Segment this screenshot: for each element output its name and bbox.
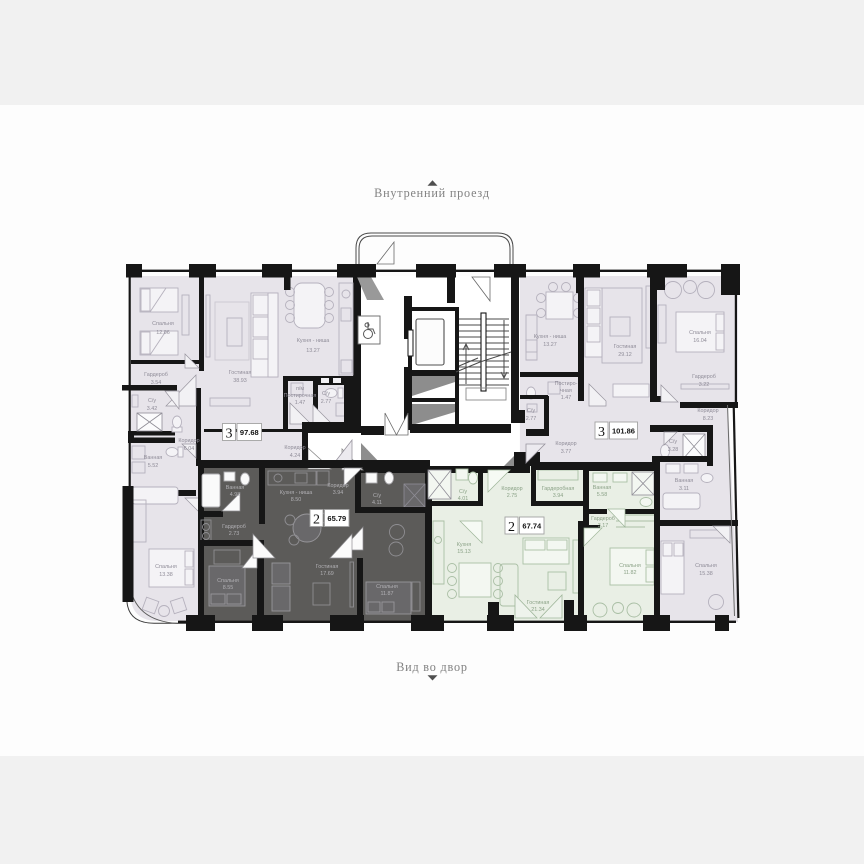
svg-text:3.11: 3.11: [679, 486, 689, 492]
svg-text:11.82: 11.82: [623, 570, 636, 576]
svg-text:3.94: 3.94: [333, 490, 344, 496]
svg-text:1.47: 1.47: [295, 400, 306, 406]
svg-text:4.98: 4.98: [230, 492, 241, 498]
svg-text:С/у: С/у: [669, 439, 677, 445]
svg-text:Вид во двор: Вид во двор: [396, 660, 468, 674]
svg-text:21.34: 21.34: [531, 607, 545, 613]
svg-text:С/у: С/у: [148, 398, 156, 404]
svg-text:3.54: 3.54: [151, 380, 162, 386]
svg-text:Гардероб: Гардероб: [692, 374, 716, 380]
svg-text:Кухня - ниша: Кухня - ниша: [297, 338, 330, 344]
svg-text:Коридор: Коридор: [697, 408, 718, 414]
svg-text:Коридор: Коридор: [178, 438, 199, 444]
svg-text:2.77: 2.77: [321, 399, 332, 405]
svg-text:8.55: 8.55: [223, 585, 234, 591]
svg-text:15.13: 15.13: [457, 549, 471, 555]
svg-text:15.38: 15.38: [699, 571, 713, 577]
svg-text:67.74: 67.74: [522, 522, 542, 531]
svg-text:Ванная: Ванная: [226, 485, 245, 491]
svg-text:5.58: 5.58: [597, 492, 608, 498]
svg-text:Внутренний проезд: Внутренний проезд: [374, 186, 490, 200]
svg-text:Гардеробная: Гардеробная: [542, 486, 575, 492]
svg-text:13.27: 13.27: [543, 342, 557, 348]
svg-text:Ванная: Ванная: [675, 478, 694, 484]
svg-text:4.24: 4.24: [290, 453, 301, 459]
svg-text:2.73: 2.73: [229, 531, 240, 537]
svg-text:8.23: 8.23: [703, 416, 714, 422]
svg-text:Кухня - ниша: Кухня - ниша: [534, 334, 567, 340]
svg-text:Спальня: Спальня: [376, 584, 398, 590]
svg-text:5.52: 5.52: [148, 463, 159, 469]
svg-text:3.22: 3.22: [699, 382, 710, 388]
svg-text:Коридор: Коридор: [501, 486, 522, 492]
svg-text:Ванная: Ванная: [593, 485, 612, 491]
svg-text:Постиро-: Постиро-: [555, 381, 578, 387]
svg-text:3.42: 3.42: [147, 406, 158, 412]
svg-text:Коридор: Коридор: [555, 441, 576, 447]
svg-text:3.17: 3.17: [598, 523, 609, 529]
svg-text:13.38: 13.38: [159, 572, 173, 578]
svg-text:Постирочная: Постирочная: [284, 393, 317, 399]
svg-text:Спальня: Спальня: [689, 330, 711, 336]
svg-text:Спальня: Спальня: [217, 578, 239, 584]
svg-text:п/м: п/м: [296, 386, 304, 392]
svg-text:2: 2: [508, 520, 515, 535]
svg-text:Коридор: Коридор: [327, 483, 348, 489]
svg-text:Кухня: Кухня: [457, 542, 472, 548]
svg-text:С/у: С/у: [373, 493, 381, 499]
svg-text:3.77: 3.77: [561, 449, 572, 455]
svg-text:чная: чная: [560, 388, 572, 394]
svg-text:4.01: 4.01: [458, 496, 469, 502]
svg-text:38.93: 38.93: [233, 378, 247, 384]
svg-text:11.87: 11.87: [380, 591, 393, 597]
svg-text:Ванная: Ванная: [144, 455, 163, 461]
svg-text:8.50: 8.50: [291, 497, 302, 503]
svg-text:13.27: 13.27: [306, 348, 320, 354]
svg-text:12.06: 12.06: [156, 330, 170, 336]
svg-text:Спальня: Спальня: [152, 321, 174, 327]
svg-text:1.47: 1.47: [561, 395, 572, 401]
svg-text:17.69: 17.69: [320, 571, 334, 577]
svg-text:Гардероб: Гардероб: [144, 372, 168, 378]
svg-text:Гардероб: Гардероб: [591, 516, 615, 522]
svg-text:Спальня: Спальня: [695, 563, 717, 569]
svg-text:3.28: 3.28: [668, 447, 679, 453]
svg-text:101.86: 101.86: [612, 427, 635, 436]
svg-text:Гостиная: Гостиная: [229, 370, 252, 376]
svg-text:Кухня - ниша: Кухня - ниша: [280, 490, 313, 496]
svg-text:Гардероб: Гардероб: [222, 524, 246, 530]
svg-text:3.94: 3.94: [553, 493, 564, 499]
svg-text:С/у: С/у: [322, 391, 330, 397]
svg-text:Гостиная: Гостиная: [614, 344, 637, 350]
svg-text:65.79: 65.79: [327, 514, 346, 523]
svg-text:3: 3: [226, 427, 233, 442]
svg-text:Коридор: Коридор: [284, 445, 305, 451]
svg-text:6.04: 6.04: [184, 446, 195, 452]
svg-text:С/у: С/у: [527, 408, 535, 414]
svg-text:2: 2: [313, 513, 320, 528]
svg-text:16.04: 16.04: [693, 338, 707, 344]
svg-text:29.12: 29.12: [618, 352, 632, 358]
svg-text:С/у: С/у: [459, 489, 467, 495]
svg-text:2.75: 2.75: [507, 493, 518, 499]
svg-text:3: 3: [598, 425, 605, 440]
svg-text:Спальня: Спальня: [619, 563, 641, 569]
svg-text:2.77: 2.77: [526, 416, 537, 422]
svg-text:Спальня: Спальня: [155, 564, 177, 570]
svg-text:Гостиная: Гостиная: [527, 600, 550, 606]
svg-text:4.11: 4.11: [372, 500, 382, 506]
svg-text:Гостиная: Гостиная: [316, 564, 339, 570]
svg-text:97.68: 97.68: [240, 428, 259, 437]
